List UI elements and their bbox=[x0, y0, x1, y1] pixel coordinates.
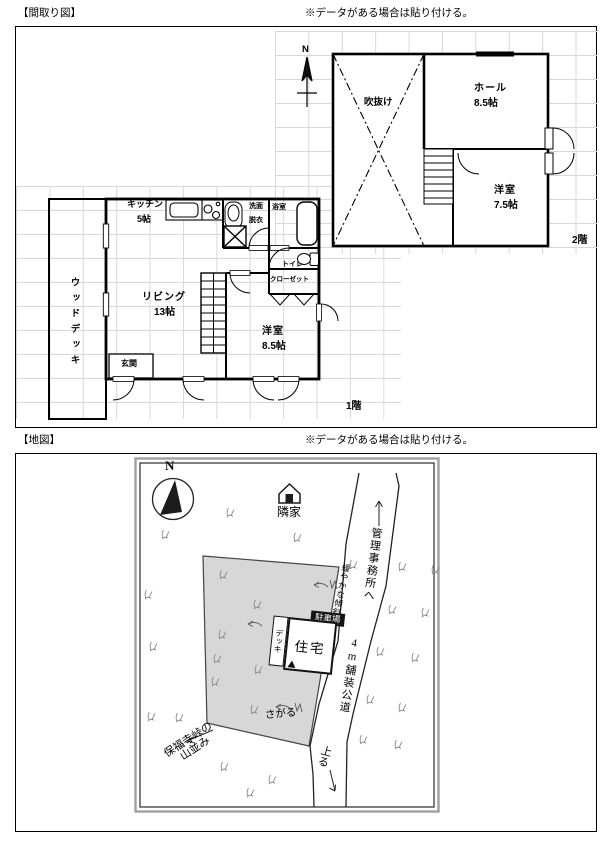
washbasin bbox=[225, 202, 242, 228]
floorplan-section-title: 【間取り図】 bbox=[18, 5, 81, 20]
washroom-label-1: 洗面 bbox=[249, 203, 263, 211]
floorplan-section-note: ※データがある場合は貼り付ける。 bbox=[305, 5, 473, 20]
deck-label: デッキ bbox=[272, 629, 285, 654]
closet-bifold-doors bbox=[270, 294, 314, 305]
hall-size: 8.5帖 bbox=[474, 98, 498, 109]
map-section-note: ※データがある場合は貼り付ける。 bbox=[305, 432, 473, 447]
washing-machine bbox=[224, 226, 246, 247]
map-north-compass bbox=[153, 479, 194, 520]
house-group: 駐車場 デッキ 住宅 bbox=[268, 608, 344, 679]
room2f-name: 洋室 bbox=[494, 185, 516, 196]
map-north-label: N bbox=[165, 459, 174, 473]
wood-deck-label: ウッドデッキ bbox=[68, 277, 78, 370]
map-section-title: 【地図】 bbox=[18, 432, 60, 447]
stairs-1f bbox=[201, 273, 226, 353]
floor2-label: 2階 bbox=[572, 235, 588, 246]
bathtub bbox=[297, 202, 317, 245]
kitchen-name: キッチン bbox=[127, 200, 163, 210]
map-panel: N 隣家 管理事務所へ 4m舗装公道 緩やかな傾斜 上る さがる 保福寺峠の 山… bbox=[15, 453, 597, 832]
room1f-name: 洋室 bbox=[262, 326, 284, 337]
floorplan-panel: N 吹抜け ホール 8.5帖 洋室 7.5帖 2階 キッチン 5帖 洗面 脱衣 … bbox=[15, 26, 597, 428]
washroom-label-2: 脱衣 bbox=[249, 217, 263, 225]
room2f-size: 7.5帖 bbox=[494, 200, 518, 211]
toilet-label: トイレ bbox=[282, 261, 303, 269]
room1f-size: 8.5帖 bbox=[262, 341, 286, 352]
house-label: 住宅 bbox=[294, 634, 327, 657]
living-name: リビング bbox=[142, 292, 186, 303]
floor1-label: 1階 bbox=[346, 401, 362, 412]
entrance-marker-icon bbox=[287, 660, 296, 668]
hall-name: ホール bbox=[474, 83, 507, 94]
void-label: 吹抜け bbox=[364, 98, 393, 108]
floor1-plan bbox=[49, 199, 338, 419]
floorplan-drawing bbox=[16, 27, 595, 426]
kitchen-counter bbox=[166, 200, 223, 220]
living-size: 13帖 bbox=[154, 307, 175, 318]
closet-label: クローゼット bbox=[270, 276, 309, 283]
north-arrow-floorplan bbox=[297, 57, 317, 107]
floor2-plan bbox=[297, 54, 574, 246]
kitchen-size: 5帖 bbox=[137, 215, 151, 225]
bath-label: 浴室 bbox=[272, 204, 286, 212]
floorplan-north-label: N bbox=[302, 45, 309, 55]
stairs-2f bbox=[424, 149, 453, 204]
property-sheet: 【間取り図】 ※データがある場合は貼り付ける。 【地図】 ※データがある場合は貼… bbox=[0, 0, 613, 853]
entrance-label: 玄関 bbox=[121, 360, 137, 369]
neighbor-label: 隣家 bbox=[277, 506, 301, 519]
